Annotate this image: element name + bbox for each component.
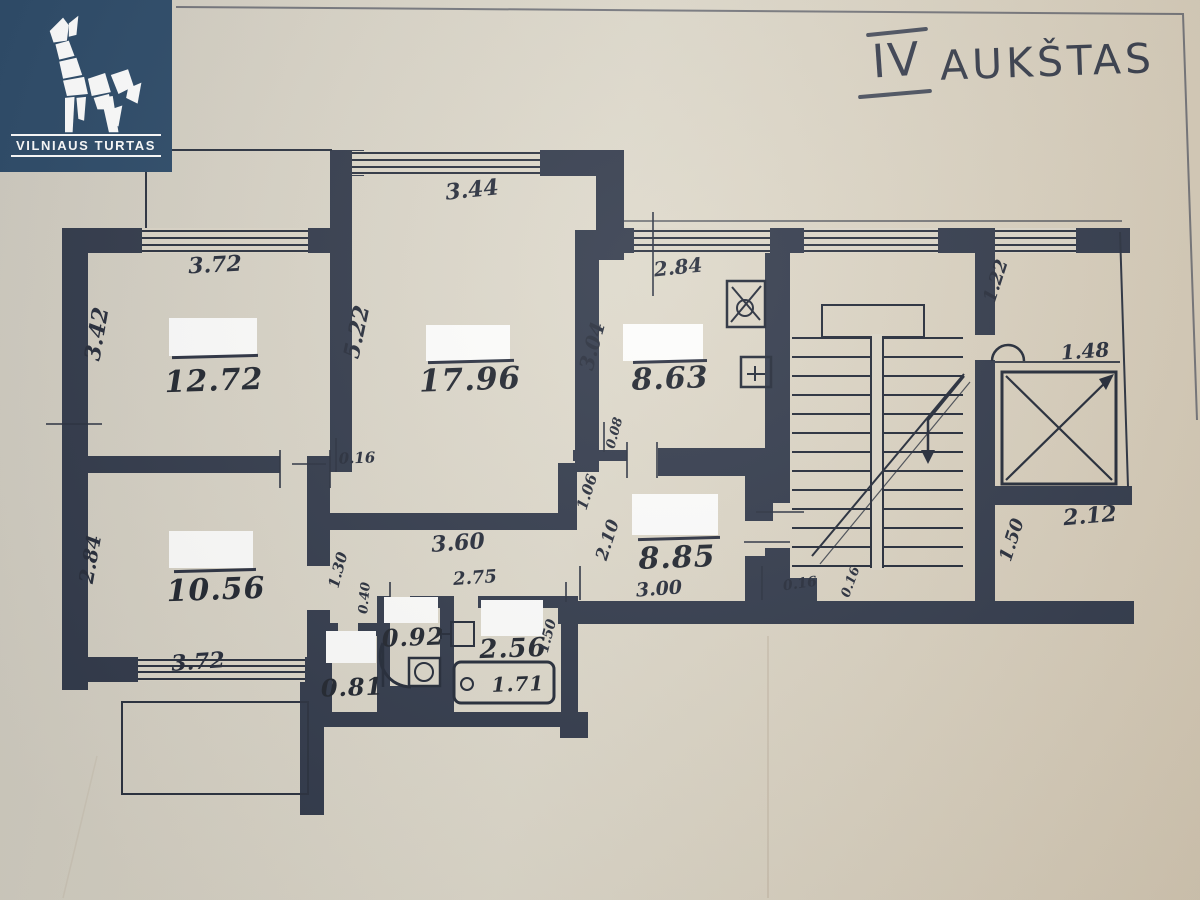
room-area-label: 8.63 <box>631 360 709 398</box>
floor-plan-drawing <box>0 0 1200 900</box>
dimension-label: 2.84 <box>653 253 704 282</box>
redaction-box <box>623 324 703 361</box>
room-area-label: 17.96 <box>418 360 521 400</box>
floor-title: AUKŠTAS <box>939 34 1155 89</box>
redaction-box <box>169 318 257 356</box>
window <box>804 228 938 253</box>
dimension-label: 3.60 <box>430 528 485 558</box>
toilet-icon <box>409 658 440 686</box>
company-name: VILNIAUS TURTAS <box>11 134 161 157</box>
room-area-label: 8.85 <box>638 539 716 577</box>
dimension-label: 2.12 <box>1062 501 1118 532</box>
dimension-label: 1.48 <box>1060 337 1110 364</box>
balcony-bottom-left <box>122 702 308 794</box>
dimension-label: 3.72 <box>170 647 225 677</box>
window <box>634 228 770 253</box>
window <box>142 228 308 253</box>
dimension-label: 2.75 <box>452 566 497 590</box>
room-area-label: 12.72 <box>164 362 264 400</box>
balcony-top-left <box>146 150 332 228</box>
dimension-label: 3.72 <box>188 251 243 280</box>
room-area-label: 0.92 <box>381 621 444 652</box>
elevator-icon <box>992 345 1120 484</box>
kitchen-sink-icon <box>727 281 765 327</box>
door-arc <box>992 345 1024 361</box>
building-right-edge <box>1120 232 1128 487</box>
redaction-box <box>426 325 510 361</box>
dimension-label: 3.00 <box>635 576 683 601</box>
dimension-label: 0.16 <box>338 448 375 467</box>
stairs-direction-arrow <box>928 376 964 456</box>
redaction-box <box>481 600 543 636</box>
redaction-box <box>326 631 376 663</box>
stairs-icon <box>792 305 970 570</box>
bathtub-size-label: 1.71 <box>491 671 545 697</box>
room-area-label: 10.56 <box>166 571 266 609</box>
wolf-icon <box>11 10 161 138</box>
redaction-box <box>169 531 253 568</box>
company-logo: VILNIAUS TURTAS <box>0 0 172 172</box>
floor-numeral: IV <box>870 31 923 88</box>
window <box>352 151 540 175</box>
floor-plan-document: VILNIAUS TURTAS IV AUKŠTAS 12.72 17.96 8… <box>0 0 1200 900</box>
dimension-label: 0.40 <box>356 582 374 615</box>
redaction-box <box>384 597 438 623</box>
room-area-label: 0.81 <box>320 671 383 702</box>
dimension-label: 3.44 <box>444 174 500 205</box>
redaction-box <box>632 494 718 535</box>
window <box>995 228 1076 253</box>
